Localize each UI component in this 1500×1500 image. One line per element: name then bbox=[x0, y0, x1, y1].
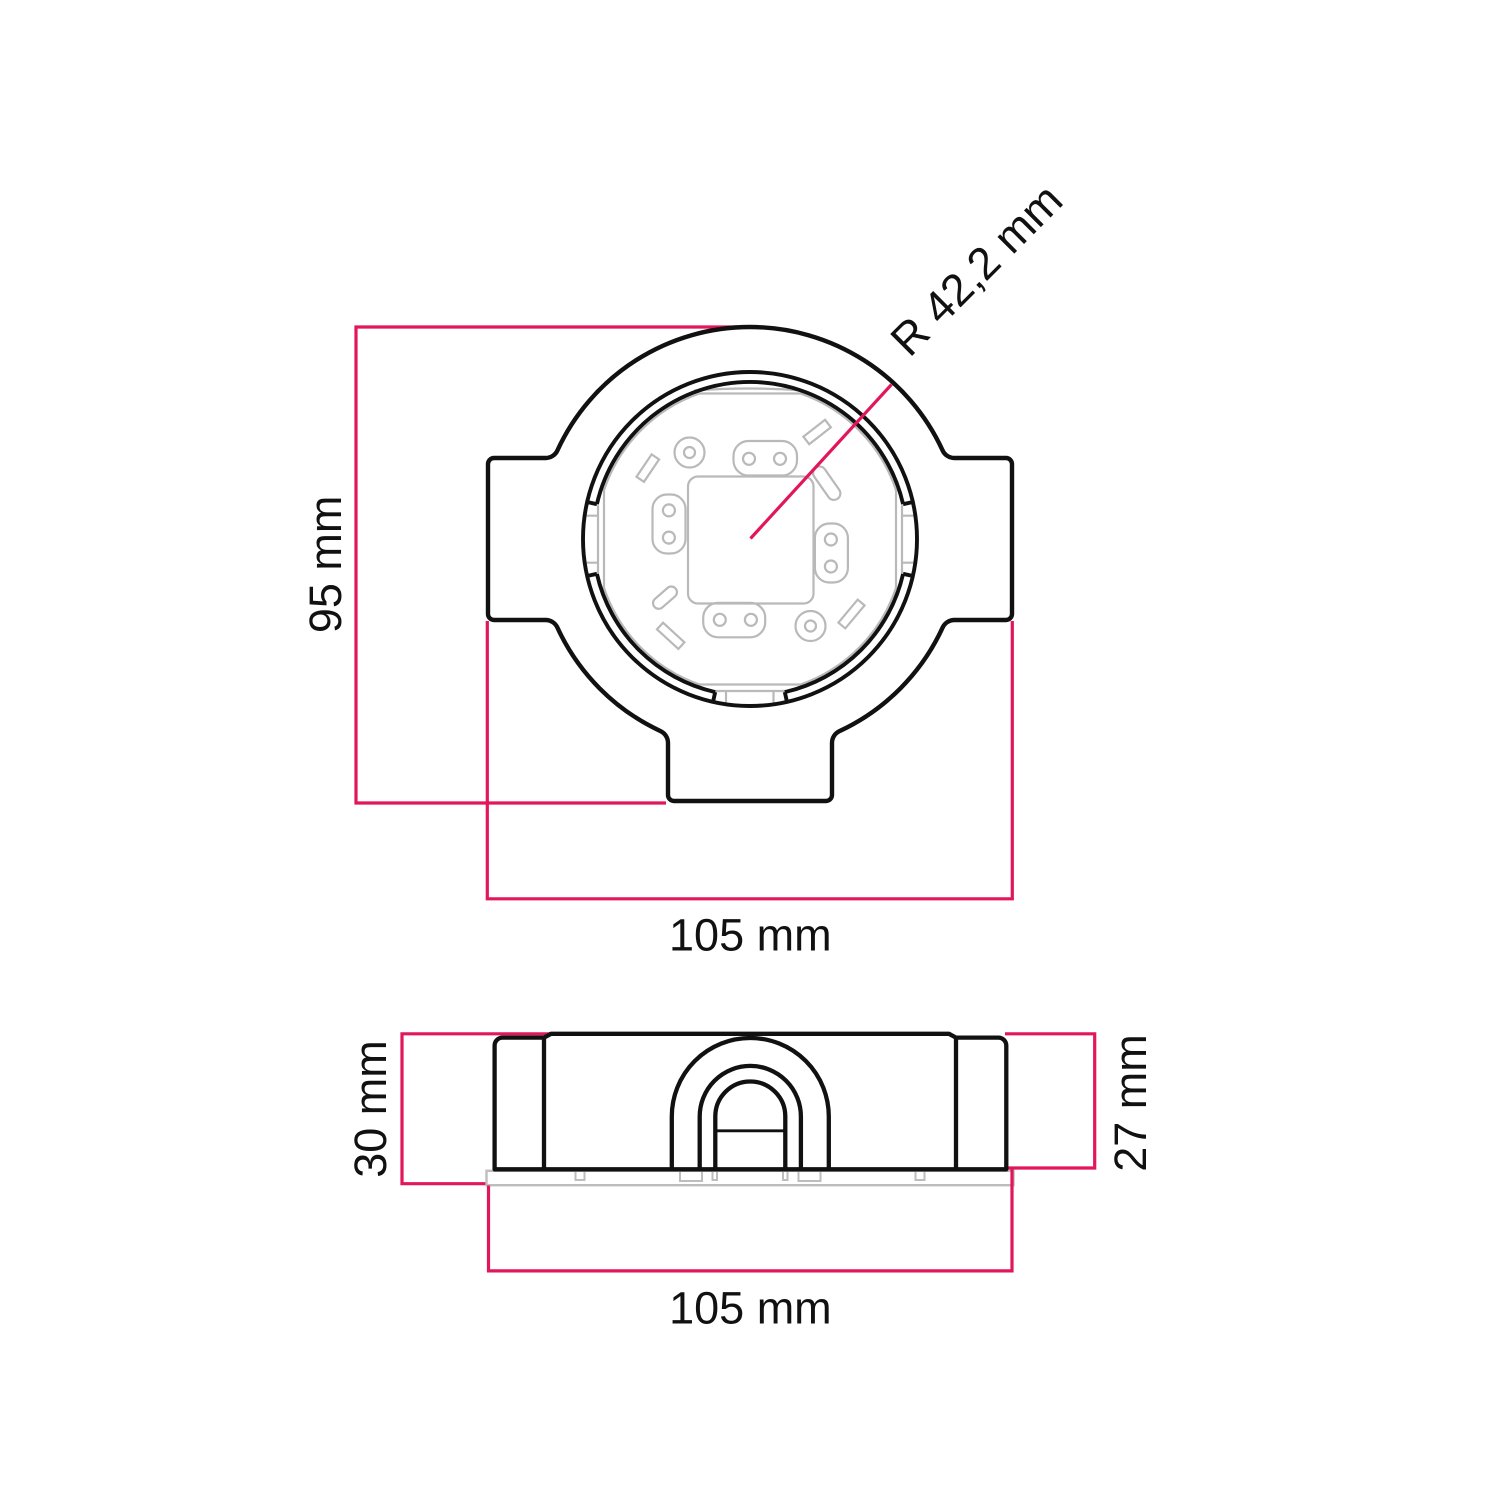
svg-text:30 mm: 30 mm bbox=[345, 1040, 396, 1178]
svg-text:95 mm: 95 mm bbox=[300, 496, 351, 634]
svg-text:105 mm: 105 mm bbox=[669, 909, 832, 960]
svg-text:105 mm: 105 mm bbox=[669, 1283, 832, 1334]
svg-text:27 mm: 27 mm bbox=[1105, 1034, 1156, 1172]
